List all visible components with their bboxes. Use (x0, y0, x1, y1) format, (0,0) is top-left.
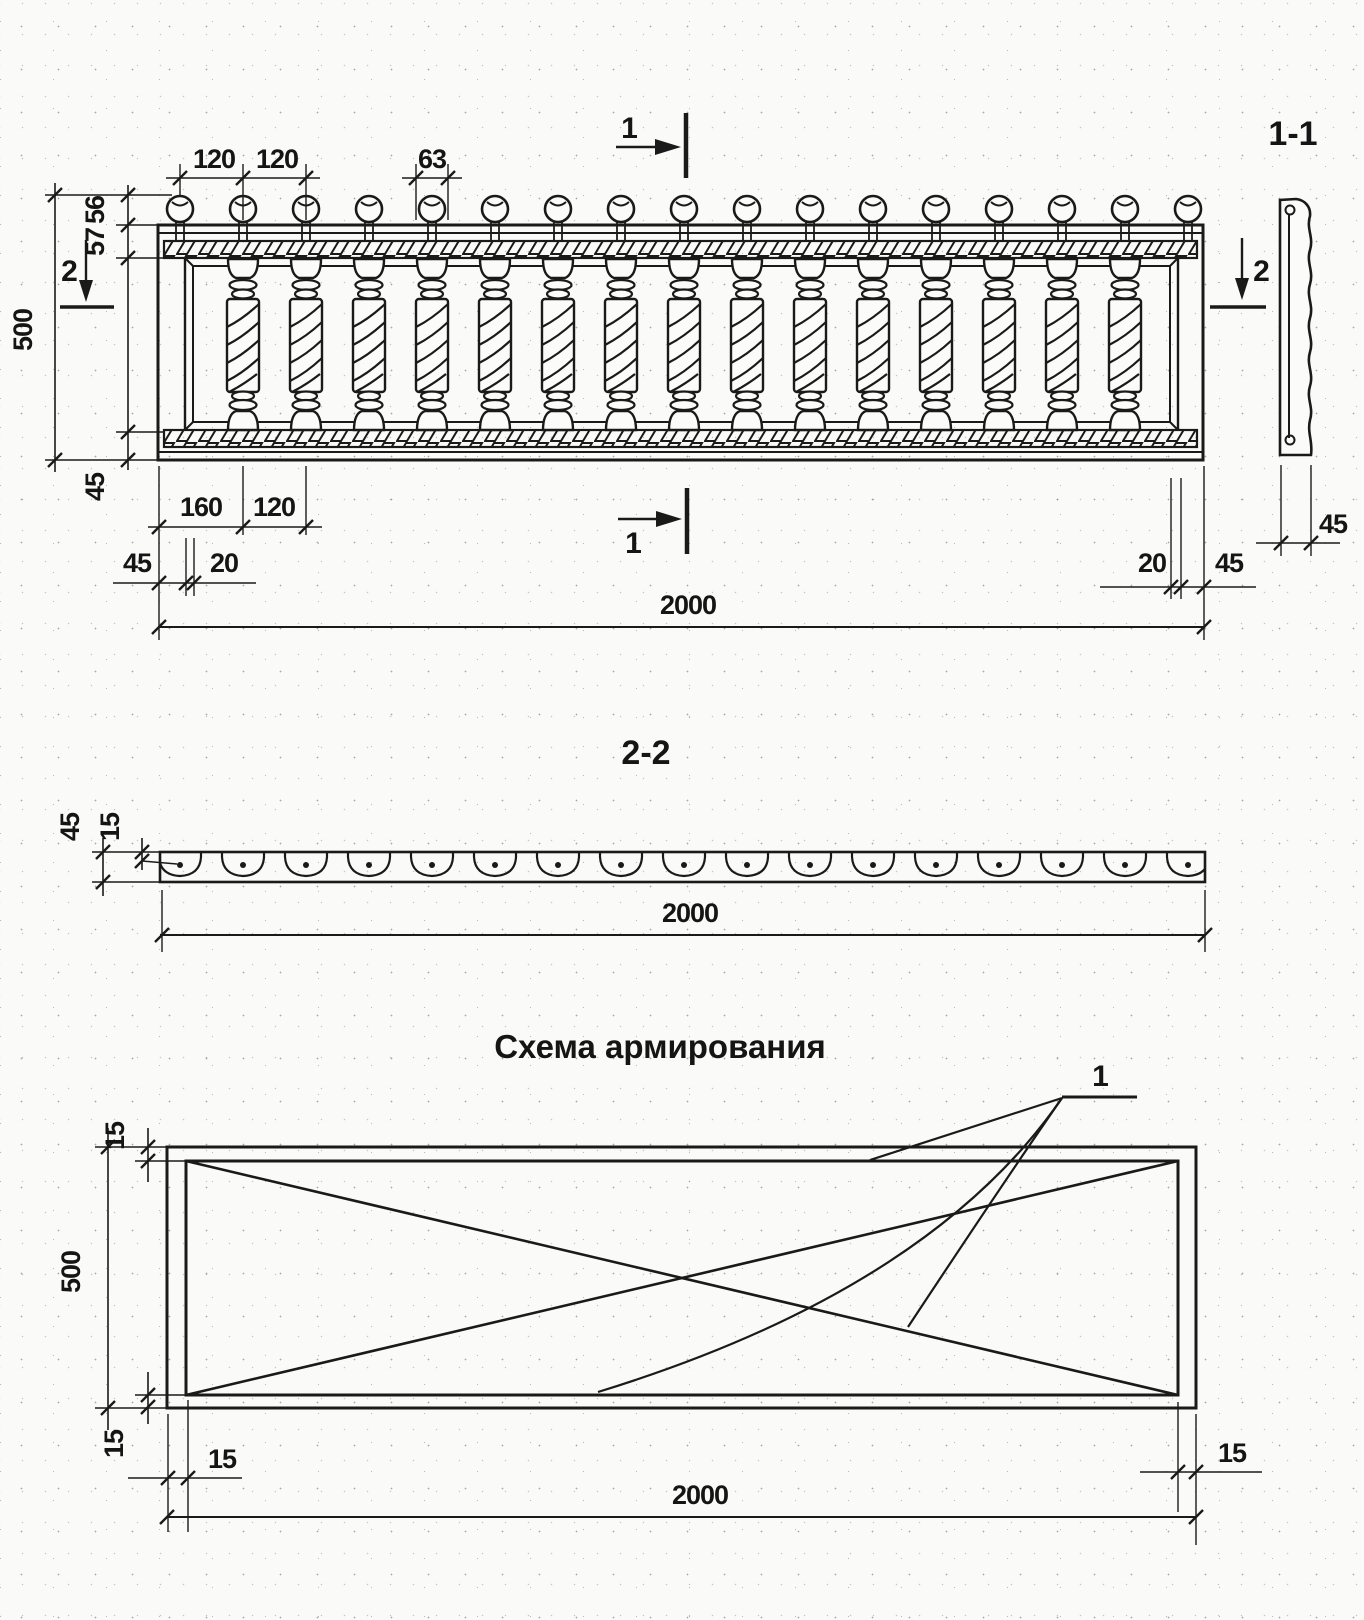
finial-knob (797, 196, 823, 241)
baluster-socket (474, 853, 516, 876)
section-mark-2-label: 2 (1253, 255, 1269, 288)
dim-label-2000: 2000 (660, 590, 716, 620)
dim-label-15-br: 15 (1218, 1438, 1247, 1468)
baluster-profile (1280, 199, 1311, 455)
finial-knob (356, 196, 382, 241)
baluster (290, 259, 322, 430)
baluster-socket (285, 853, 327, 876)
baluster (920, 259, 952, 430)
dim-label-15-top: 15 (100, 1121, 130, 1150)
reinforcement-title: Схема армирования (494, 1028, 826, 1065)
finial-knob (545, 196, 571, 241)
finial-knob (734, 196, 760, 241)
baluster (605, 259, 637, 430)
dim-label-20-br: 20 (1138, 548, 1166, 578)
finial-knob (1175, 196, 1201, 241)
baluster-socket (222, 853, 264, 876)
section-mark-1-label: 1 (625, 527, 641, 560)
dim-cover-right: 15 (1140, 1402, 1262, 1545)
balustrade-drawing: 120 120 63 1 1 2 (0, 0, 1364, 1620)
dim-label-45-left: 45 (80, 472, 110, 501)
section-mark-2-right: 2 (1210, 238, 1269, 307)
baluster (479, 259, 511, 430)
dim-label-120-b: 120 (256, 144, 298, 174)
leader-line (870, 1098, 1062, 1160)
baluster-socket (411, 853, 453, 876)
callout-label-1: 1 (1092, 1060, 1108, 1093)
leader-line (598, 1098, 1062, 1392)
dim-label-15-strip: 15 (95, 812, 125, 841)
dim-label-63: 63 (418, 144, 447, 174)
baluster (1046, 259, 1078, 430)
top-rope-rail (164, 241, 1197, 258)
dim-profile-45: 45 (1256, 465, 1348, 556)
baluster-socket (537, 853, 579, 876)
baluster (227, 259, 259, 430)
finial-knob (167, 196, 193, 241)
section-mark-2-label: 2 (61, 255, 77, 288)
bottom-rope-rail (164, 430, 1197, 447)
baluster (857, 259, 889, 430)
baluster-socket (789, 853, 831, 876)
dim-bottom: 160 120 45 20 20 45 2000 (113, 466, 1256, 640)
leader-line (908, 1098, 1062, 1327)
finial-knob (482, 196, 508, 241)
finial-knob (1049, 196, 1075, 241)
dim-reinforcement-width: 2000 (160, 1480, 1203, 1524)
finial-knob (671, 196, 697, 241)
baluster (416, 259, 448, 430)
baluster-socket (159, 853, 201, 876)
section-1-1-view: 1-1 45 (1256, 115, 1348, 556)
baluster (1109, 259, 1141, 430)
baluster (668, 259, 700, 430)
dim-label-500: 500 (8, 309, 38, 351)
baluster-socket (1167, 853, 1209, 876)
baluster-socket (600, 853, 642, 876)
baluster-socket (1104, 853, 1146, 876)
finial-knob (923, 196, 949, 241)
baluster-socket (852, 853, 894, 876)
finial-knob (419, 196, 445, 241)
finial-knob (860, 196, 886, 241)
section-mark-1-label: 1 (621, 112, 637, 145)
baluster-row (227, 259, 1141, 430)
finial-row (167, 196, 1201, 241)
finial-knob (986, 196, 1012, 241)
baluster (731, 259, 763, 430)
dim-label-20-bl: 20 (210, 548, 238, 578)
scanned-drawing-page: 120 120 63 1 1 2 (0, 0, 1364, 1620)
socket-row (159, 853, 1209, 876)
dim-label-120-c: 120 (253, 492, 295, 522)
dim-label-45-strip: 45 (55, 812, 85, 841)
baluster (983, 259, 1015, 430)
baluster-socket (663, 853, 705, 876)
section-2-2-view: 2-2 (55, 734, 1212, 952)
baluster (542, 259, 574, 430)
finial-knob (608, 196, 634, 241)
dim-label-120-a: 120 (193, 144, 235, 174)
baluster-socket (348, 853, 390, 876)
baluster-socket (1041, 853, 1083, 876)
dim-label-2000-strip: 2000 (662, 898, 718, 928)
dim-label-15-bl: 15 (208, 1444, 237, 1474)
elevation-view: 120 120 63 1 1 2 (8, 112, 1269, 640)
dim-left-column: 56 57 500 45 (8, 183, 172, 501)
dim-label-500-reinf: 500 (56, 1251, 86, 1293)
baluster-socket (978, 853, 1020, 876)
baluster (794, 259, 826, 430)
dim-label-15-bottom: 15 (99, 1429, 129, 1458)
finial-knob (1112, 196, 1138, 241)
dim-label-56: 56 (80, 195, 110, 224)
dim-label-160: 160 (180, 492, 222, 522)
section-mark-1-bottom: 1 (618, 488, 687, 560)
baluster-socket (726, 853, 768, 876)
baluster-socket (915, 853, 957, 876)
rebar-callout: 1 (598, 1060, 1137, 1392)
dim-label-45-profile: 45 (1319, 509, 1348, 539)
section-1-1-title: 1-1 (1268, 115, 1317, 153)
dim-cover-left: 15 (128, 1400, 242, 1532)
reinforcement-scheme: Схема армирования 1 1 (56, 1028, 1262, 1545)
dim-label-45-br: 45 (1215, 548, 1244, 578)
dim-strip-width: 2000 (155, 890, 1212, 952)
baluster (353, 259, 385, 430)
dim-label-45-bl: 45 (123, 548, 152, 578)
section-2-2-title: 2-2 (621, 734, 670, 772)
dim-label-57: 57 (80, 228, 110, 256)
dim-label-2000-reinf: 2000 (672, 1480, 728, 1510)
section-mark-1-top: 1 (616, 112, 686, 178)
